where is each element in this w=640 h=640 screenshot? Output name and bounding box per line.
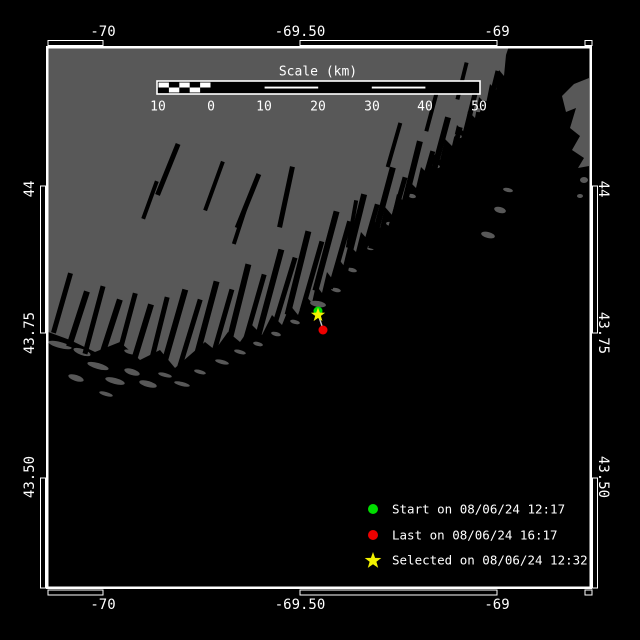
lon-label-top-69: -69	[484, 24, 509, 40]
scale-bar	[157, 81, 480, 94]
lat-label-left-44: 44	[22, 181, 38, 198]
lon-label-bottom-6950: -69.50	[275, 597, 326, 613]
legend-start-icon	[368, 504, 378, 514]
scale-tick-30: 30	[364, 100, 380, 115]
scale-tick-10: 10	[256, 100, 272, 115]
scale-bar-title: Scale (km)	[279, 65, 357, 80]
scale-tick-50: 50	[471, 100, 487, 115]
lon-label-top-6950: -69.50	[275, 24, 326, 40]
legend-last-label: Last on 08/06/24 16:17	[392, 528, 558, 543]
map-canvas	[0, 0, 640, 640]
lat-label-right-4375: 43.75	[595, 312, 611, 354]
lon-label-bottom-70: -70	[90, 597, 115, 613]
lat-label-left-4350: 43.50	[22, 456, 38, 498]
scale-tick-40: 40	[417, 100, 433, 115]
legend-last-icon	[368, 530, 378, 540]
lon-label-bottom-69: -69	[484, 597, 509, 613]
legend-selected-label: Selected on 08/06/24 12:32	[392, 553, 588, 568]
last-marker[interactable]	[319, 326, 328, 335]
lon-label-top-70: -70	[90, 24, 115, 40]
lat-label-right-4350: 43.50	[595, 456, 611, 498]
lat-label-right-44: 44	[595, 181, 611, 198]
lat-label-left-4375: 43.75	[22, 312, 38, 354]
legend-start-label: Start on 08/06/24 12:17	[392, 502, 565, 517]
scale-tick-0: 0	[207, 100, 215, 115]
scale-tick-10l: 10	[150, 100, 166, 115]
map-plot: -70 -69.50 -69 -70 -69.50 -69 44 43.75 4…	[0, 0, 640, 640]
scale-tick-20: 20	[310, 100, 326, 115]
